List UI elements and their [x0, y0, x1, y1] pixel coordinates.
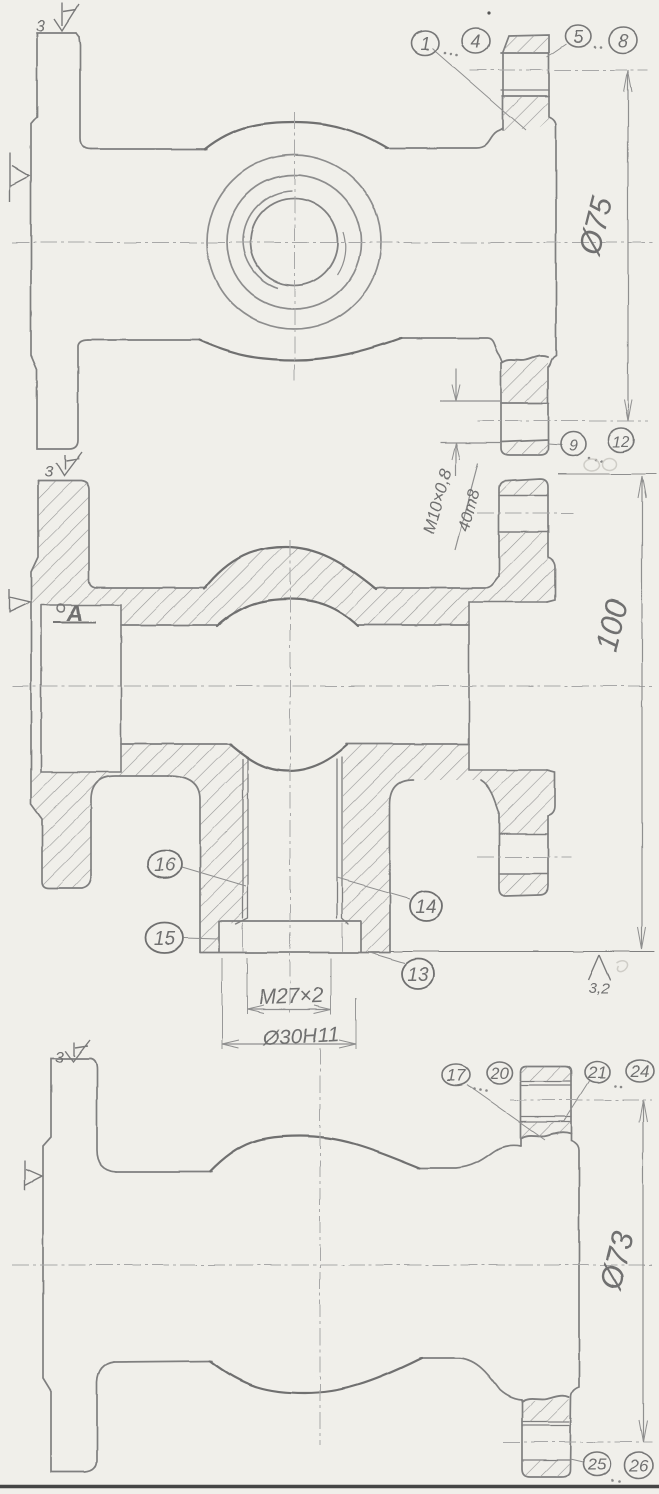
svg-text:20: 20 [490, 1064, 510, 1083]
svg-text:3,2: 3,2 [589, 980, 611, 997]
svg-text:M27×2: M27×2 [258, 984, 324, 1009]
svg-text:3: 3 [55, 1050, 64, 1067]
svg-text:17: 17 [447, 1066, 466, 1085]
svg-text:25: 25 [587, 1455, 607, 1474]
svg-text:13: 13 [407, 965, 429, 986]
svg-text:4: 4 [471, 32, 481, 52]
svg-text:3: 3 [44, 464, 53, 481]
svg-text:26: 26 [629, 1456, 649, 1475]
svg-text:A: A [66, 600, 84, 626]
svg-text:Ø30H11: Ø30H11 [261, 1023, 340, 1050]
svg-text:16: 16 [154, 855, 176, 876]
svg-text:14: 14 [415, 897, 436, 918]
svg-text:1: 1 [420, 34, 430, 54]
svg-text:9: 9 [569, 438, 578, 455]
svg-text:8: 8 [618, 31, 628, 51]
svg-text:15: 15 [153, 929, 175, 950]
svg-text:24: 24 [630, 1062, 650, 1081]
svg-text:21: 21 [587, 1063, 607, 1082]
svg-text:3: 3 [36, 18, 45, 35]
svg-text:12: 12 [612, 434, 630, 451]
svg-text:5: 5 [573, 27, 584, 47]
